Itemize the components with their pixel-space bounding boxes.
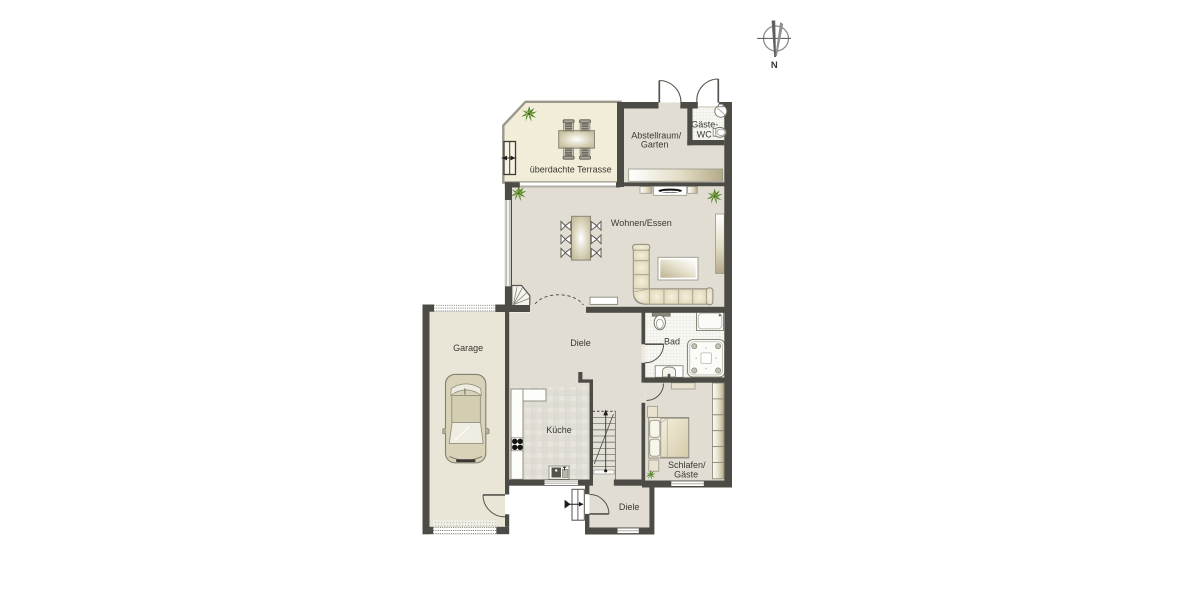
svg-text:Diele: Diele (570, 338, 591, 348)
svg-text:N: N (771, 60, 778, 71)
svg-text:WC: WC (697, 129, 712, 139)
svg-text:Garten: Garten (641, 140, 669, 150)
svg-text:Küche: Küche (546, 425, 572, 435)
svg-text:überdachte Terrasse: überdachte Terrasse (530, 165, 612, 175)
svg-text:Diele: Diele (619, 502, 640, 512)
svg-text:Wohnen/Essen: Wohnen/Essen (611, 218, 672, 228)
svg-text:Gäste: Gäste (674, 469, 698, 479)
svg-text:Garage: Garage (453, 343, 483, 353)
svg-text:Bad: Bad (664, 337, 680, 347)
